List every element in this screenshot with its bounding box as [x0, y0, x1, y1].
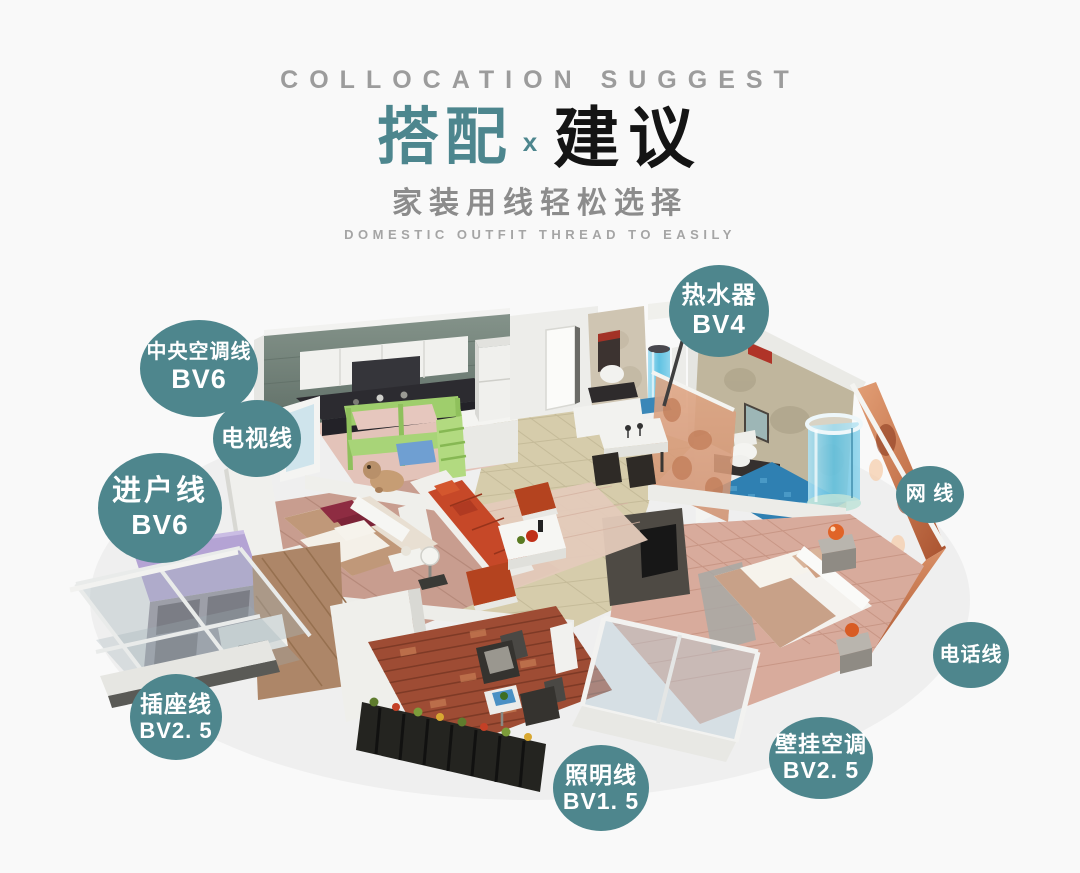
poster-canvas: COLLOCATION SUGGEST 搭配x建议 家装用线轻松选择 DOMES…: [0, 0, 1080, 873]
badge-water-heater-label: 热水器: [682, 282, 757, 310]
header: COLLOCATION SUGGEST 搭配x建议 家装用线轻松选择 DOMES…: [0, 68, 1080, 241]
badge-water-heater: 热水器 BV4: [669, 265, 769, 357]
subtitle-text: 家装用线轻松选择: [0, 189, 1080, 219]
red-bowl: [526, 530, 538, 542]
fridge-side: [475, 340, 479, 422]
badge-entry-line-label: 进户线: [112, 475, 208, 508]
dining-chair-1: [592, 452, 622, 486]
shower-cabin: [807, 415, 861, 512]
bunk-ladder: [436, 416, 466, 480]
entry-door: [546, 326, 575, 410]
badge-socket-line-spec: BV2. 5: [139, 718, 212, 743]
badge-tv-line-label: 电视线: [221, 425, 293, 451]
lamp-orange-2: [845, 623, 859, 637]
badge-entry-line: 进户线 BV6: [98, 453, 222, 563]
title-right: 建议: [553, 101, 703, 175]
hallway: [510, 306, 598, 420]
badge-network-line-label: 网 线: [906, 483, 955, 506]
badge-central-ac-label: 中央空调线: [147, 341, 252, 364]
bath-basin: [730, 455, 750, 467]
badge-wall-ac-label: 壁挂空调: [775, 732, 867, 757]
kids-desk-blue: [396, 440, 436, 466]
badge-wall-ac: 壁挂空调 BV2. 5: [769, 717, 873, 799]
badge-network-line: 网 线: [896, 466, 964, 523]
badge-lighting-line-label: 照明线: [565, 762, 637, 788]
eyebrow-text: COLLOCATION SUGGEST: [0, 68, 1080, 93]
badge-water-heater-spec: BV4: [692, 310, 746, 340]
wash-basin: [600, 365, 624, 383]
badge-phone-line: 电话线: [933, 622, 1009, 688]
badge-socket-line-label: 插座线: [140, 691, 212, 717]
entry-door-edge: [575, 326, 580, 404]
dining-chair-2: [626, 454, 656, 488]
page-title: 搭配x建议: [0, 105, 1080, 177]
water-heater-cap: [648, 345, 670, 353]
kitchen-island-front: [461, 420, 518, 470]
tv-screen: [640, 524, 678, 578]
badge-lighting-line-spec: BV1. 5: [563, 788, 639, 814]
title-x: x: [523, 127, 537, 157]
badge-wall-ac-spec: BV2. 5: [783, 757, 859, 783]
badge-lighting-line: 照明线 BV1. 5: [553, 745, 649, 831]
badge-phone-line-label: 电话线: [940, 644, 1003, 667]
subtitle-en-text: DOMESTIC OUTFIT THREAD TO EASILY: [0, 228, 1080, 241]
badge-tv-line: 电视线: [213, 400, 301, 477]
badge-socket-line: 插座线 BV2. 5: [130, 674, 222, 760]
title-left: 搭配: [377, 103, 513, 172]
badge-entry-line-spec: BV6: [131, 509, 188, 541]
lamp-orange: [828, 524, 844, 540]
badge-central-ac-spec: BV6: [171, 364, 227, 395]
